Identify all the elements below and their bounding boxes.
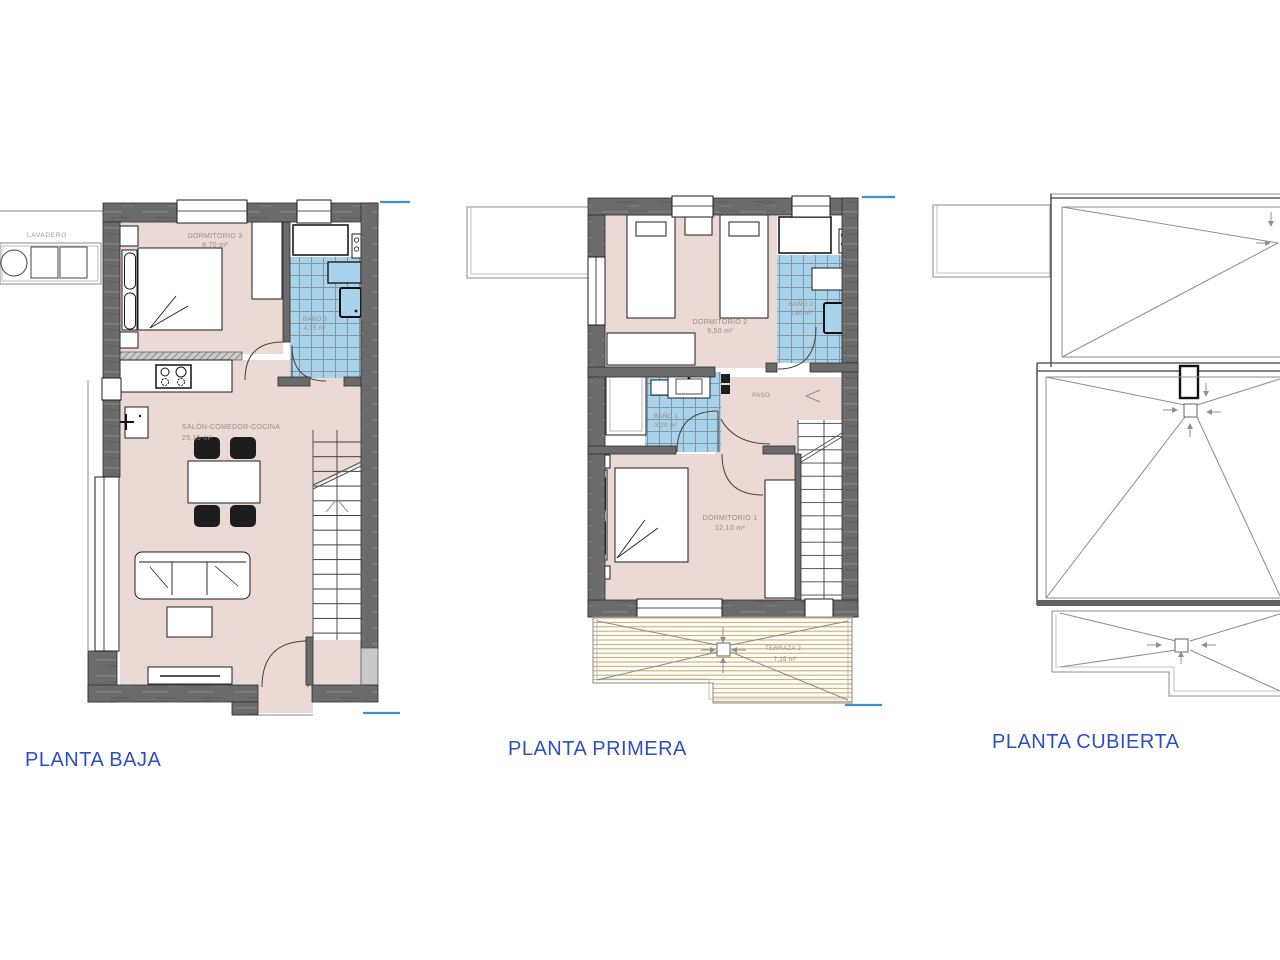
window bbox=[792, 196, 830, 217]
room-label-dormitorio1: DORMITORIO 1 bbox=[703, 515, 758, 522]
chair bbox=[230, 437, 256, 459]
bathroom-sink bbox=[328, 262, 361, 283]
room-area-terraza2: 7,15 m² bbox=[774, 656, 797, 663]
bed-single bbox=[720, 215, 768, 318]
floorplan-drawing: LAVADERO BAÑO 3 4,15 m² bbox=[0, 0, 1280, 960]
staircase-baja bbox=[313, 430, 361, 640]
room-label-paso: PASO bbox=[752, 392, 770, 399]
bathroom1: BAÑO 1 3,20 m² bbox=[606, 372, 721, 452]
laundry-sink bbox=[1, 250, 27, 276]
roof-drain bbox=[1175, 639, 1188, 652]
dresser bbox=[607, 333, 695, 365]
roof-section-lower bbox=[1052, 611, 1280, 696]
bathroom2: BAÑO 2 3,80 m² bbox=[777, 215, 850, 369]
chair bbox=[230, 505, 256, 527]
room-area-bano2: 3,80 m² bbox=[790, 310, 813, 317]
title-planta-cubierta: PLANTA CUBIERTA bbox=[992, 731, 1180, 753]
window bbox=[588, 257, 605, 325]
window bbox=[102, 378, 121, 400]
floorplan-sheet: LAVADERO BAÑO 3 4,15 m² bbox=[0, 0, 1280, 960]
floor-plan-planta-baja: LAVADERO BAÑO 3 4,15 m² bbox=[0, 200, 410, 715]
roof-plan-planta-cubierta bbox=[933, 194, 1280, 696]
window bbox=[805, 599, 833, 618]
terrace-door bbox=[637, 599, 722, 618]
bed-single bbox=[627, 215, 675, 318]
toilet bbox=[340, 288, 361, 317]
roof-section-upper bbox=[1050, 194, 1280, 367]
drainage-arrows bbox=[1256, 212, 1274, 246]
bathroom3: BAÑO 3 4,15 m² bbox=[290, 222, 361, 381]
lavadero-area: LAVADERO bbox=[0, 211, 103, 284]
room-label-dormitorio3: DORMITORIO 3 bbox=[188, 233, 243, 240]
roof-terrace-outline bbox=[933, 205, 1050, 277]
chimney bbox=[1180, 366, 1198, 398]
room-area-bano1: 3,20 m² bbox=[655, 422, 678, 429]
roof-drain bbox=[1184, 404, 1197, 417]
roof-section-main bbox=[1037, 377, 1280, 606]
chair bbox=[194, 505, 220, 527]
room-area-salon: 25,15 m² bbox=[182, 435, 212, 442]
room-area-dormitorio3: 8,70 m² bbox=[202, 242, 228, 249]
room-label-salon: SALÓN-COMEDOR-COCINA bbox=[182, 422, 280, 431]
glass-door bbox=[95, 477, 119, 651]
pillow bbox=[125, 253, 136, 289]
roof-edge-band bbox=[1037, 600, 1280, 606]
shower-tray bbox=[779, 217, 831, 253]
terrace-drain bbox=[717, 643, 730, 656]
stove bbox=[156, 365, 191, 388]
room-label-terraza2: TERRAZA 2 bbox=[765, 645, 801, 652]
dining-table bbox=[188, 461, 260, 503]
wardrobe bbox=[765, 480, 797, 598]
window bbox=[177, 200, 247, 223]
nightstand bbox=[685, 217, 712, 235]
wardrobe bbox=[252, 222, 282, 299]
title-planta-baja: PLANTA BAJA bbox=[25, 749, 161, 771]
coffee-table bbox=[167, 607, 212, 637]
room-label-lavadero: LAVADERO bbox=[27, 232, 67, 239]
kitchen-partition bbox=[120, 352, 242, 360]
pillow bbox=[125, 293, 136, 329]
window bbox=[297, 200, 331, 223]
room-area-bano3: 4,15 m² bbox=[304, 325, 327, 332]
sofa bbox=[135, 552, 250, 599]
room-label-dormitorio2: DORMITORIO 2 bbox=[693, 319, 748, 326]
shower-tray bbox=[293, 225, 348, 255]
window bbox=[672, 196, 713, 217]
room-area-dormitorio1: 12,10 m² bbox=[715, 525, 745, 532]
room-area-dormitorio2: 9,50 m² bbox=[707, 328, 733, 335]
room-label-bano3: BAÑO 3 bbox=[303, 314, 328, 323]
tv-stand bbox=[148, 667, 232, 684]
room-label-bano1: BAÑO 1 bbox=[654, 411, 679, 420]
washing-machine bbox=[31, 247, 58, 278]
dryer bbox=[60, 247, 87, 278]
floor-plan-planta-primera: DORMITORIO 2 9,50 m² BAÑO 2 3,80 m² bbox=[467, 196, 895, 705]
title-planta-primera: PLANTA PRIMERA bbox=[508, 738, 687, 760]
terrace1-outline bbox=[467, 207, 590, 278]
room-label-bano2: BAÑO 2 bbox=[789, 299, 814, 308]
terraza2: TERRAZA 2 7,15 m² bbox=[593, 617, 852, 703]
closet bbox=[606, 373, 646, 435]
